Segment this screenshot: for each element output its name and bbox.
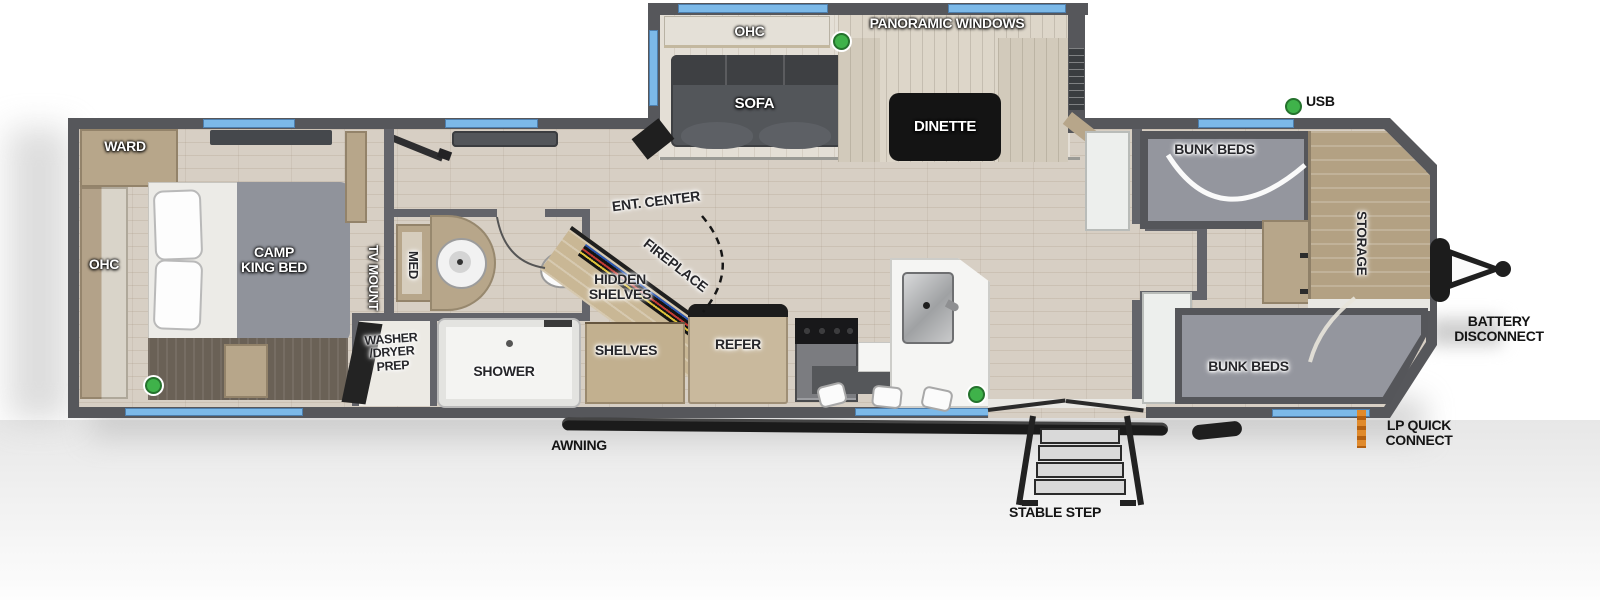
window-bottom-bedroom (125, 408, 303, 416)
sink-drain (923, 302, 930, 309)
storage-label: STORAGE (1350, 202, 1372, 284)
pillow-top (153, 189, 203, 261)
dinette-side-window (1069, 48, 1084, 110)
pillow-bottom (153, 259, 203, 331)
window-top-hall (445, 119, 538, 128)
hitch-coupler (1495, 261, 1511, 277)
ward-label: WARD (96, 139, 154, 154)
kitchen-counter-strip (858, 342, 894, 372)
rear-shadow (8, 128, 70, 420)
stable-step-ladder (1020, 416, 1140, 508)
bedroom-wall (384, 129, 394, 319)
ladder-step-1 (1040, 428, 1120, 444)
roof-vent (452, 131, 558, 147)
window-top-bedroom (203, 119, 295, 128)
range-cooktop (795, 318, 858, 344)
sink-drain-dot (457, 259, 463, 265)
bunk-beds-upper-label: BUNK BEDS (1162, 142, 1267, 157)
sofa-label: SOFA (722, 96, 787, 112)
hidden-shelves-label: HIDDEN SHELVES (578, 272, 662, 302)
tongue-jack (1430, 238, 1450, 302)
ohc-bedroom-label: OHC (82, 257, 126, 272)
camp-king-bed-label: CAMP KING BED (225, 245, 323, 275)
led-indicator-bedroom (145, 377, 162, 394)
window-bottom-bunkroom (1272, 409, 1370, 417)
sofa-seat-cushion-left (681, 122, 753, 149)
window-bottom-kitchen (855, 408, 1005, 416)
shelves-label: SHELVES (588, 343, 664, 358)
shower-label: SHOWER (460, 364, 548, 379)
refer (688, 304, 788, 404)
pantry-cabinet (1085, 131, 1130, 231)
sofa-backrest (671, 55, 843, 85)
lp-quick-connect-label: LP QUICK CONNECT (1376, 418, 1462, 448)
dinette-bench-right (998, 38, 1068, 162)
ohc-cabinet-bedroom (80, 187, 128, 399)
dinette-bench-left (838, 38, 880, 162)
bunkroom-door-jamb (1197, 222, 1207, 300)
ladder-step-2 (1038, 445, 1122, 461)
led-indicator-slideout (833, 33, 850, 50)
front-window-shade (210, 130, 332, 145)
bunk-lower-mattress (1182, 315, 1421, 397)
ladder-step-4 (1034, 479, 1126, 495)
ladder-step-3 (1036, 462, 1124, 478)
slideout-window-top-left (678, 4, 828, 13)
awning-label: AWNING (543, 438, 615, 453)
floorplan-canvas: PANORAMIC WINDOWS OHC SOFA DINETTE USB B… (0, 0, 1600, 600)
sofa-seat-cushion-right (759, 122, 831, 149)
refer-top-trim (688, 304, 788, 317)
stool-2 (871, 384, 903, 409)
slideout-window-left (649, 30, 658, 106)
bunkroom-wall-lower (1132, 300, 1142, 406)
ladder-foot-right (1120, 500, 1136, 506)
bunk-beds-lower-label: BUNK BEDS (1196, 359, 1301, 374)
usb-indicator-dot (1285, 98, 1302, 115)
bedroom-tv-cabinet (345, 131, 367, 223)
slideout-window-top-right (948, 4, 1066, 13)
dinette-label: DINETTE (905, 119, 985, 135)
usb-label: USB (1306, 94, 1351, 109)
washer-dryer-prep-label: WASHER /DRYER PREP (349, 330, 436, 376)
window-top-bunkroom (1198, 119, 1294, 128)
med-label: MED (403, 226, 423, 304)
shower-door-track (544, 320, 572, 327)
led-indicator-kitchen (968, 386, 985, 403)
refer-label: REFER (702, 337, 774, 352)
a-frame-hitch (1444, 247, 1504, 291)
shelves-cabinet (585, 322, 685, 404)
panoramic-windows-label: PANORAMIC WINDOWS (858, 16, 1036, 31)
lp-connector-fitting (1357, 410, 1366, 448)
bed-drawer-unit (224, 344, 268, 398)
battery-disconnect-label: BATTERY DISCONNECT (1438, 314, 1560, 344)
a-frame-hitch-inner (1452, 256, 1489, 282)
stable-step-label: STABLE STEP (995, 505, 1115, 520)
tv-mount-label: TV MOUNT (363, 234, 383, 322)
ohc-slideout-label: OHC (722, 24, 777, 39)
shower-drain (506, 340, 513, 347)
